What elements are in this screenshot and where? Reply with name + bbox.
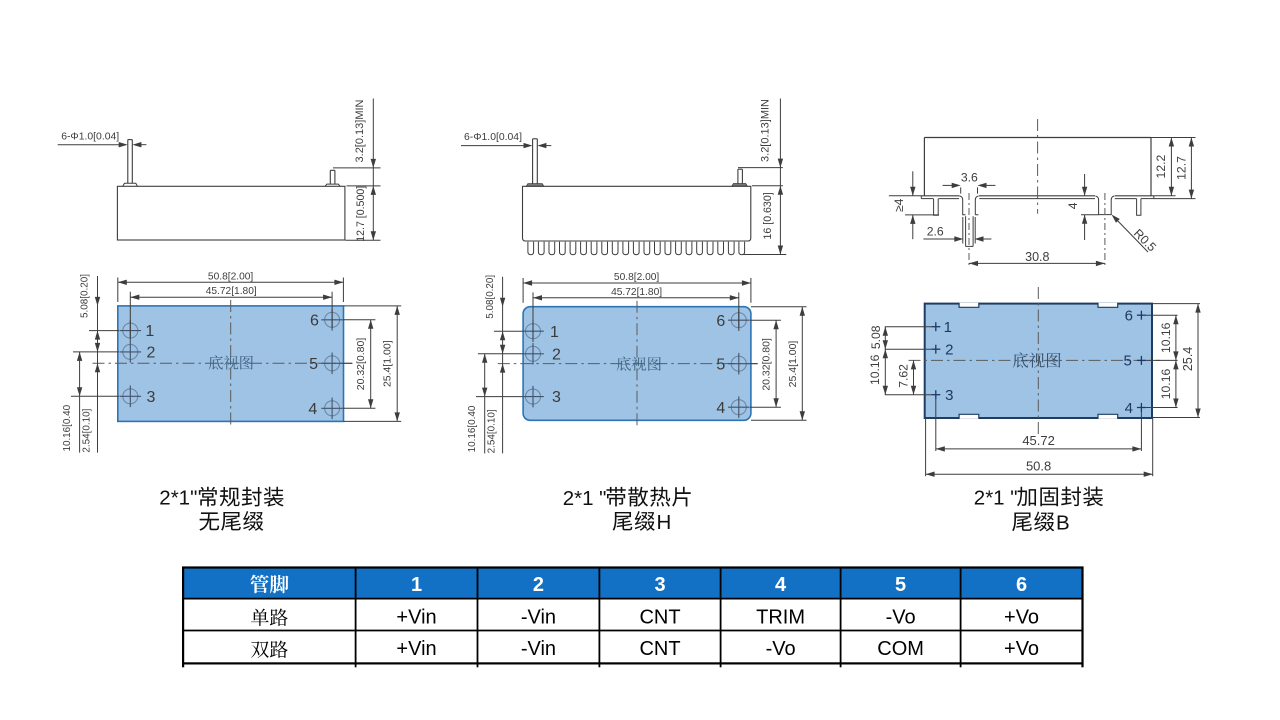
svg-text:12.7: 12.7	[1174, 156, 1188, 180]
svg-text:CNT: CNT	[639, 606, 680, 628]
svg-text:-Vin: -Vin	[521, 606, 556, 628]
svg-text:+Vo: +Vo	[1004, 606, 1039, 628]
svg-text:2.54[0.10]: 2.54[0.10]	[487, 409, 498, 453]
svg-text:6-Φ1.0[0.04]: 6-Φ1.0[0.04]	[61, 132, 119, 143]
svg-text:2.54[0.10]: 2.54[0.10]	[81, 408, 92, 452]
svg-text:5: 5	[1124, 353, 1132, 370]
svg-text:3: 3	[945, 387, 953, 404]
svg-text:50.8[2.00]: 50.8[2.00]	[208, 271, 253, 282]
svg-text:12.2: 12.2	[1154, 155, 1168, 179]
svg-text:COM: COM	[877, 638, 924, 660]
svg-text:45.72[1.80]: 45.72[1.80]	[611, 287, 662, 298]
svg-text:-Vo: -Vo	[886, 606, 916, 628]
svg-text:3.6: 3.6	[961, 170, 978, 184]
svg-text:5.08[0.20]: 5.08[0.20]	[485, 275, 496, 319]
svg-text:6: 6	[1125, 308, 1133, 325]
svg-text:1: 1	[411, 574, 422, 596]
svg-text:3: 3	[654, 574, 665, 596]
svg-text:10.16[0.40: 10.16[0.40	[467, 405, 478, 452]
svg-text:1: 1	[145, 323, 154, 340]
svg-text:5: 5	[309, 356, 318, 373]
svg-text:2: 2	[945, 342, 953, 359]
svg-text:6-Φ1.0[0.04]: 6-Φ1.0[0.04]	[464, 132, 522, 143]
svg-text:+Vin: +Vin	[396, 638, 436, 660]
svg-text:B: B	[1056, 512, 1070, 535]
svg-text:4: 4	[308, 401, 317, 418]
svg-text:+Vo: +Vo	[1004, 638, 1039, 660]
svg-text:45.72[1.80]: 45.72[1.80]	[206, 286, 257, 297]
svg-text:10.16: 10.16	[1159, 322, 1173, 353]
svg-text:2: 2	[147, 345, 156, 362]
svg-text:2: 2	[533, 574, 544, 596]
svg-text:3: 3	[147, 389, 156, 406]
svg-text:50.8: 50.8	[1026, 458, 1051, 473]
svg-text:50.8[2.00]: 50.8[2.00]	[614, 272, 659, 283]
svg-text:1: 1	[944, 319, 952, 336]
svg-text:TRIM: TRIM	[756, 606, 805, 628]
svg-text:2.6: 2.6	[927, 225, 944, 239]
svg-text:4: 4	[1125, 400, 1133, 417]
svg-text:1: 1	[550, 324, 559, 341]
svg-text:2: 2	[552, 346, 561, 363]
svg-text:25.4[1.00]: 25.4[1.00]	[381, 340, 393, 387]
svg-text:6: 6	[1016, 574, 1027, 596]
svg-text:20.32[0.80]: 20.32[0.80]	[355, 338, 367, 391]
svg-text:CNT: CNT	[639, 638, 680, 660]
svg-text:25.4: 25.4	[1181, 347, 1195, 371]
svg-text:10.16: 10.16	[1159, 369, 1173, 400]
svg-text:2*1 ": 2*1 "	[563, 487, 607, 510]
svg-text:2*1 ": 2*1 "	[974, 487, 1018, 510]
svg-text:4: 4	[1066, 202, 1080, 209]
svg-text:20.32[0.80]: 20.32[0.80]	[761, 338, 773, 391]
svg-text:45.72: 45.72	[1022, 433, 1055, 448]
svg-text:10.16[0.40: 10.16[0.40	[62, 404, 73, 451]
svg-text:4: 4	[716, 400, 725, 417]
svg-text:3: 3	[552, 389, 561, 406]
svg-text:5.08[0.20]: 5.08[0.20]	[80, 274, 91, 318]
svg-text:10.16: 10.16	[868, 354, 882, 385]
svg-text:-Vin: -Vin	[521, 638, 556, 660]
svg-text:3.2[0.13]MIN: 3.2[0.13]MIN	[354, 99, 366, 162]
svg-text:3.2[0.13]MIN: 3.2[0.13]MIN	[760, 99, 772, 162]
svg-text:6: 6	[310, 313, 319, 330]
svg-text:5: 5	[716, 356, 725, 373]
svg-text:30.8: 30.8	[1025, 250, 1049, 264]
svg-text:2*1": 2*1"	[159, 487, 197, 510]
svg-text:5: 5	[895, 574, 906, 596]
svg-text:6: 6	[716, 313, 725, 330]
svg-text:4: 4	[775, 574, 787, 596]
svg-text:12.7 [0.500]: 12.7 [0.500]	[355, 186, 367, 242]
svg-text:H: H	[657, 511, 672, 534]
svg-text:≥4: ≥4	[892, 198, 906, 212]
svg-text:25.4[1.00]: 25.4[1.00]	[787, 341, 799, 388]
svg-text:+Vin: +Vin	[396, 606, 436, 628]
svg-text:16 [0.630]: 16 [0.630]	[762, 192, 774, 239]
svg-text:7.62: 7.62	[897, 364, 911, 388]
svg-text:5.08: 5.08	[869, 325, 883, 349]
svg-text:-Vo: -Vo	[766, 638, 796, 660]
